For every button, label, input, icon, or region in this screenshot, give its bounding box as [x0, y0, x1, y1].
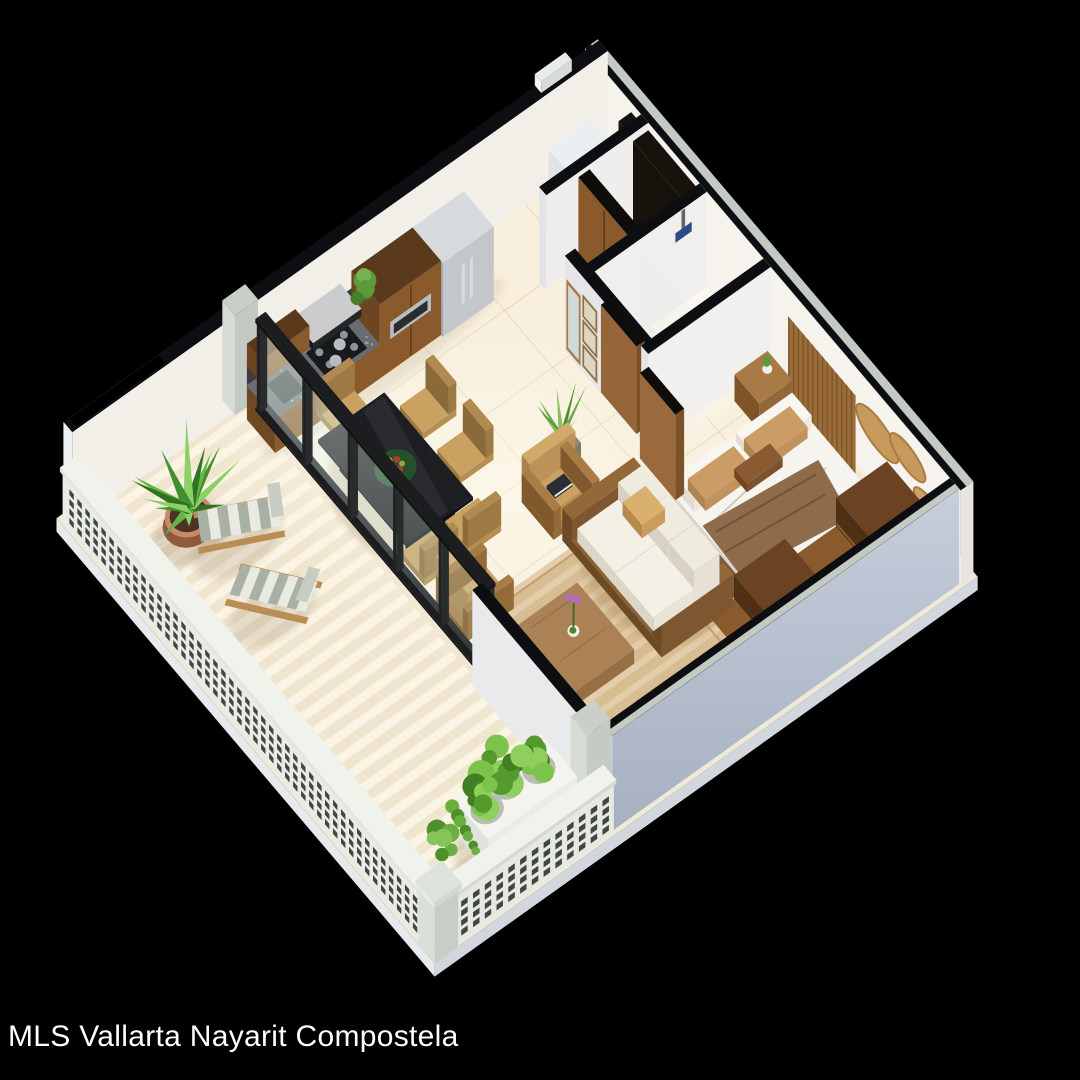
- dining-chair: [486, 426, 494, 459]
- floor-plant: [434, 829, 452, 847]
- glass-mullion: [257, 319, 260, 413]
- monstera: [510, 744, 533, 767]
- wall-ne: [961, 482, 974, 586]
- isometric-floorplan: [0, 0, 1080, 1080]
- door-bedroom-open: [675, 409, 684, 501]
- fruit-green: [399, 460, 405, 466]
- headboard-slats: [827, 362, 828, 447]
- mirror-glass: [568, 285, 579, 360]
- glass-mullion: [348, 426, 351, 520]
- headboard-slats: [851, 390, 852, 475]
- headboard-slats: [841, 379, 842, 464]
- wall-utility-divider: [539, 187, 546, 290]
- glass-mullion: [439, 533, 442, 627]
- granite-speckle: [371, 343, 373, 345]
- burners: [340, 331, 348, 339]
- fridge-handle: [470, 257, 473, 299]
- burners: [350, 343, 358, 351]
- headboard-slats: [836, 373, 837, 458]
- fruit-red: [393, 456, 400, 463]
- glass-mullion: [302, 372, 305, 466]
- shower-pipe: [682, 208, 686, 229]
- shelf-plant: [350, 292, 363, 305]
- floorplan-render: MLS Vallarta Nayarit Compostela: [0, 0, 1080, 1080]
- dining-chair: [449, 382, 457, 415]
- headboard-slats: [832, 367, 833, 452]
- floor-plant: [435, 848, 449, 862]
- orchid-flowers: [574, 597, 581, 604]
- headboard-slats: [812, 345, 813, 430]
- pots-on-stove: [334, 338, 346, 350]
- orchid-flowers: [564, 594, 571, 601]
- monstera: [533, 762, 553, 782]
- orchid-leaf: [569, 627, 576, 634]
- headboard-slats: [817, 350, 818, 435]
- monstera: [474, 794, 493, 813]
- headboard-slats: [846, 384, 847, 469]
- fridge-handle: [462, 263, 465, 305]
- monstera: [482, 777, 498, 793]
- trailing-vine: [463, 831, 473, 841]
- granite-speckle: [365, 336, 367, 338]
- caption: MLS Vallarta Nayarit Compostela: [8, 1020, 459, 1054]
- granite-speckle: [365, 342, 367, 344]
- burners: [315, 348, 323, 356]
- vase-plant: [763, 360, 770, 367]
- headboard-slats: [822, 356, 823, 441]
- pillar-kitchen-end: [222, 300, 235, 415]
- glass-mullion: [393, 479, 396, 573]
